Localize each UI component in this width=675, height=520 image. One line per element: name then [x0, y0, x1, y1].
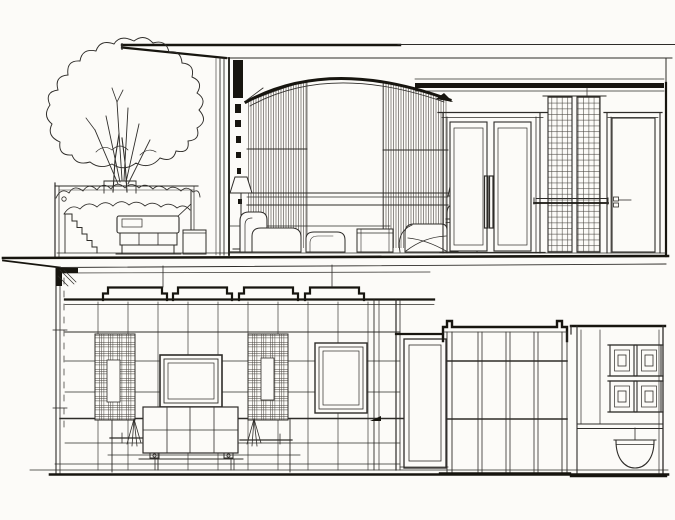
framed-window: [315, 343, 367, 413]
single-door-upper: [604, 113, 662, 254]
door-bay: [396, 334, 448, 468]
side-table: [183, 230, 206, 254]
panel-niche-left: [107, 360, 120, 402]
drawing-sheet: Two-level interior elevation section, in…: [0, 0, 675, 520]
media-screen-frame: [160, 355, 222, 407]
cube-table: [357, 229, 393, 252]
curtain-wall-right: [383, 82, 448, 248]
ottoman: [306, 232, 345, 252]
panel-niche-right: [261, 358, 274, 400]
elevation-drawing: Two-level interior elevation section, in…: [0, 0, 675, 520]
